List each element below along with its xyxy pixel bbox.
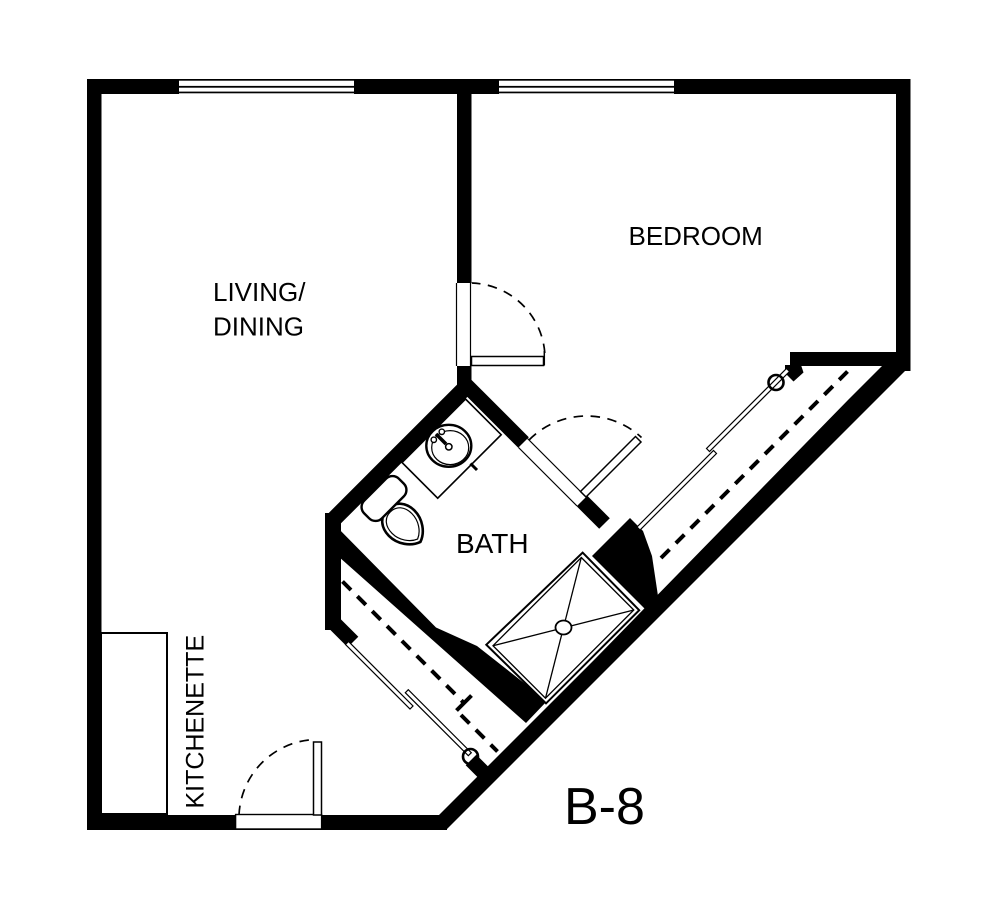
svg-text:KITCHENETTE: KITCHENETTE [182, 635, 210, 809]
svg-text:DINING: DINING [213, 312, 304, 342]
svg-text:LIVING/: LIVING/ [213, 277, 306, 307]
svg-text:B-8: B-8 [564, 778, 645, 836]
svg-text:BEDROOM: BEDROOM [629, 221, 763, 251]
svg-text:BATH: BATH [456, 528, 529, 559]
